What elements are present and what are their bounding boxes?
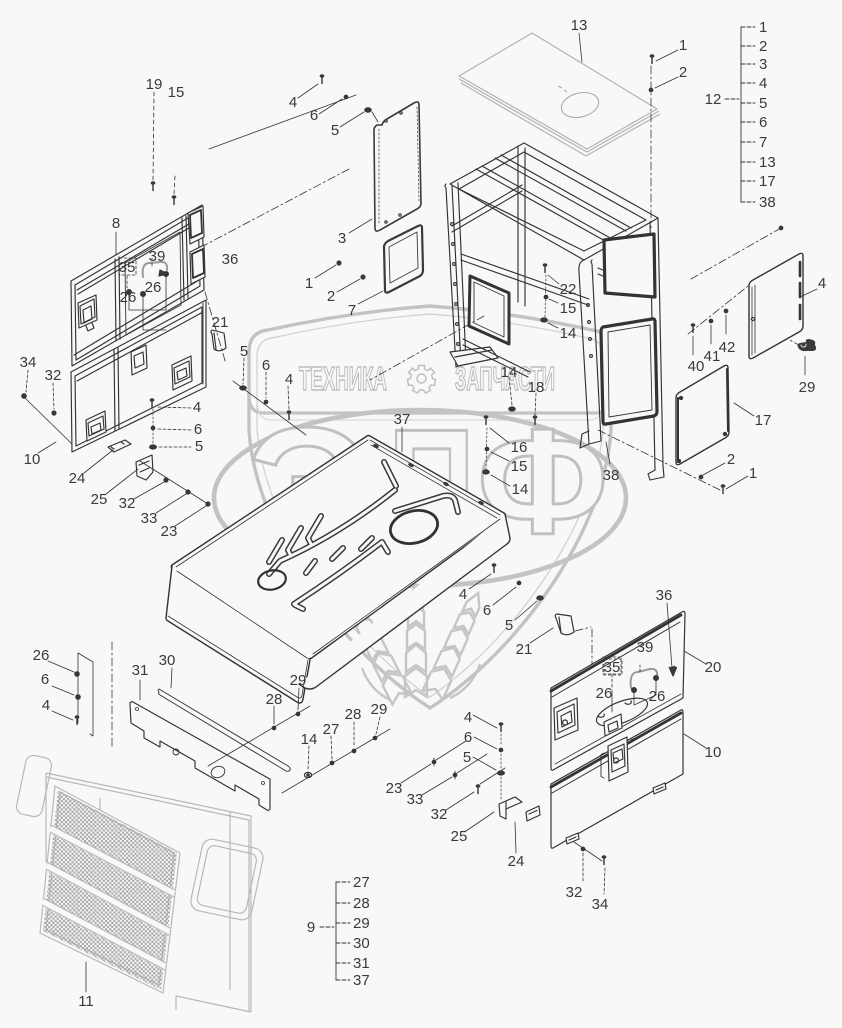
svg-text:27: 27 [323,721,340,738]
svg-text:6: 6 [41,671,49,688]
svg-text:42: 42 [719,339,736,356]
svg-text:2: 2 [727,451,735,468]
svg-text:6: 6 [310,107,318,124]
svg-text:24: 24 [508,853,525,870]
svg-text:12: 12 [705,91,722,108]
svg-text:7: 7 [759,134,767,151]
svg-text:4: 4 [459,586,467,603]
svg-text:26: 26 [649,688,666,705]
svg-text:32: 32 [431,806,448,823]
svg-text:32: 32 [566,884,583,901]
svg-text:29: 29 [353,915,370,932]
svg-text:4: 4 [193,399,201,416]
svg-text:5: 5 [463,749,471,766]
svg-text:14: 14 [501,364,518,381]
svg-text:27: 27 [353,874,370,891]
svg-text:5: 5 [195,438,203,455]
svg-text:3: 3 [759,56,767,73]
svg-text:32: 32 [119,495,136,512]
svg-text:1: 1 [759,19,767,36]
svg-text:37: 37 [394,411,411,428]
svg-text:15: 15 [560,300,577,317]
svg-text:21: 21 [516,641,533,658]
svg-text:34: 34 [592,896,609,913]
svg-text:6: 6 [483,602,491,619]
svg-text:31: 31 [132,662,149,679]
svg-text:40: 40 [688,358,705,375]
svg-text:6: 6 [464,729,472,746]
svg-text:39: 39 [149,248,166,265]
svg-text:22: 22 [560,281,577,298]
svg-text:1: 1 [305,275,313,292]
svg-text:14: 14 [301,731,318,748]
svg-text:4: 4 [759,75,767,92]
svg-text:35: 35 [119,259,136,276]
svg-text:36: 36 [222,251,239,268]
svg-text:23: 23 [386,780,403,797]
svg-text:21: 21 [212,314,229,331]
svg-text:33: 33 [407,791,424,808]
svg-text:13: 13 [571,17,588,34]
svg-text:6: 6 [262,357,270,374]
svg-text:4: 4 [289,94,297,111]
svg-text:14: 14 [560,325,577,342]
svg-text:30: 30 [159,652,176,669]
svg-text:18: 18 [528,379,545,396]
svg-text:19: 19 [146,76,163,93]
svg-text:6: 6 [194,421,202,438]
svg-text:28: 28 [345,706,362,723]
svg-text:26: 26 [596,685,613,702]
svg-text:28: 28 [353,895,370,912]
svg-text:32: 32 [45,367,62,384]
svg-text:5: 5 [240,343,248,360]
svg-text:4: 4 [818,275,826,292]
svg-text:15: 15 [511,458,528,475]
svg-text:29: 29 [290,672,307,689]
svg-text:10: 10 [24,451,41,468]
svg-text:2: 2 [759,38,767,55]
svg-text:30: 30 [353,935,370,952]
svg-text:9: 9 [307,919,315,936]
svg-text:25: 25 [91,491,108,508]
svg-text:1: 1 [679,37,687,54]
svg-text:10: 10 [705,744,722,761]
svg-text:4: 4 [42,697,50,714]
svg-text:6: 6 [759,114,767,131]
svg-text:2: 2 [327,288,335,305]
svg-text:5: 5 [759,95,767,112]
svg-text:37: 37 [353,972,370,989]
svg-text:23: 23 [161,523,178,540]
svg-text:38: 38 [603,467,620,484]
svg-text:7: 7 [348,302,356,319]
svg-text:1: 1 [749,465,757,482]
svg-text:24: 24 [69,470,86,487]
svg-text:13: 13 [759,154,776,171]
svg-text:20: 20 [705,659,722,676]
svg-text:3: 3 [338,230,346,247]
svg-text:17: 17 [755,412,772,429]
svg-text:4: 4 [285,371,293,388]
svg-text:33: 33 [141,510,158,527]
svg-text:25: 25 [451,828,468,845]
svg-text:14: 14 [512,481,529,498]
svg-text:31: 31 [353,955,370,972]
svg-text:28: 28 [266,691,283,708]
svg-text:26: 26 [145,279,162,296]
svg-text:26: 26 [120,289,137,306]
svg-text:11: 11 [78,993,94,1010]
svg-text:5: 5 [331,122,339,139]
svg-text:34: 34 [20,354,37,371]
svg-text:35: 35 [604,659,621,676]
svg-text:5: 5 [505,617,513,634]
svg-text:39: 39 [637,639,654,656]
svg-text:38: 38 [759,194,776,211]
svg-text:8: 8 [112,215,120,232]
svg-text:29: 29 [799,379,816,396]
svg-text:15: 15 [168,84,185,101]
svg-text:2: 2 [679,64,687,81]
svg-text:16: 16 [511,439,528,456]
svg-text:17: 17 [759,173,776,190]
svg-text:26: 26 [33,647,50,664]
svg-text:4: 4 [464,709,472,726]
svg-text:36: 36 [656,587,673,604]
svg-text:29: 29 [371,701,388,718]
